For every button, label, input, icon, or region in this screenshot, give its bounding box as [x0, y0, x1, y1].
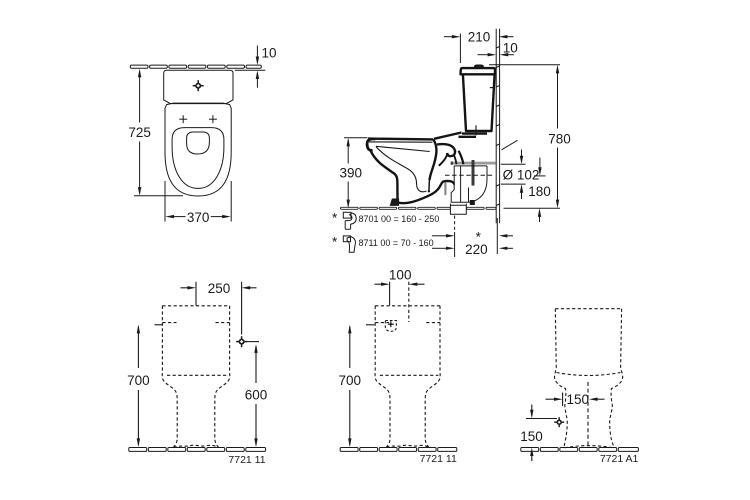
- svg-text:250: 250: [208, 281, 231, 296]
- svg-text:700: 700: [339, 373, 362, 388]
- svg-text:10: 10: [262, 46, 277, 61]
- svg-text:100: 100: [389, 267, 412, 282]
- svg-text:725: 725: [128, 125, 151, 140]
- svg-text:Ø 102: Ø 102: [503, 168, 540, 183]
- svg-text:150: 150: [520, 429, 543, 444]
- svg-text:780: 780: [548, 131, 571, 146]
- svg-text:8711 00 = 70 - 160: 8711 00 = 70 - 160: [359, 238, 434, 248]
- svg-text:150: 150: [567, 392, 590, 407]
- svg-text:*: *: [476, 230, 482, 245]
- svg-text:390: 390: [340, 165, 363, 180]
- svg-text:600: 600: [245, 387, 268, 402]
- svg-text:210: 210: [468, 30, 491, 45]
- svg-text:7721 11: 7721 11: [228, 454, 265, 466]
- svg-text:7721 A1: 7721 A1: [600, 453, 639, 465]
- svg-text:8701 00 = 160 - 250: 8701 00 = 160 - 250: [359, 214, 440, 224]
- svg-text:700: 700: [127, 373, 150, 388]
- svg-text:370: 370: [187, 210, 210, 225]
- svg-text:10: 10: [503, 40, 518, 55]
- svg-text:180: 180: [528, 184, 551, 199]
- svg-text:*: *: [332, 211, 338, 226]
- svg-text:7721 11: 7721 11: [420, 453, 457, 465]
- svg-text:*: *: [332, 235, 338, 250]
